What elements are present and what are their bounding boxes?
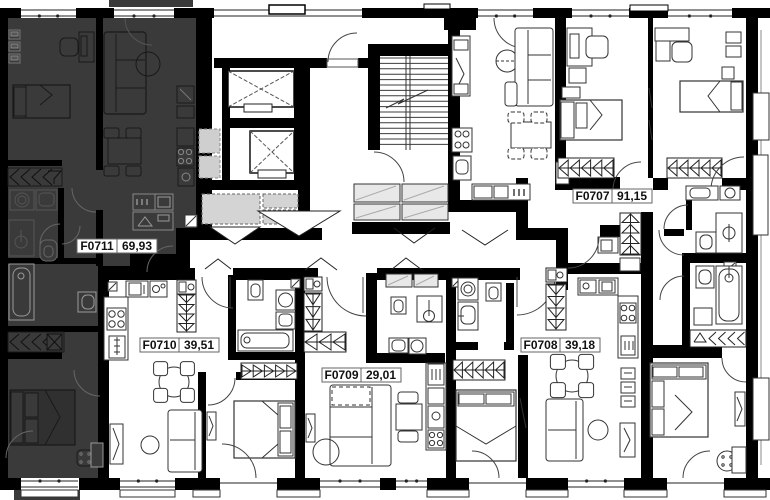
svg-text:F0708: F0708: [523, 338, 557, 352]
svg-text:F0711: F0711: [80, 239, 114, 253]
svg-text:F0709: F0709: [324, 368, 358, 382]
svg-text:F0707: F0707: [575, 189, 609, 203]
svg-text:29,01: 29,01: [366, 368, 396, 382]
svg-text:91,15: 91,15: [617, 189, 647, 203]
svg-text:39,18: 39,18: [565, 338, 595, 352]
svg-text:F0710: F0710: [142, 338, 176, 352]
svg-text:39,51: 39,51: [184, 338, 214, 352]
svg-text:69,93: 69,93: [122, 239, 152, 253]
